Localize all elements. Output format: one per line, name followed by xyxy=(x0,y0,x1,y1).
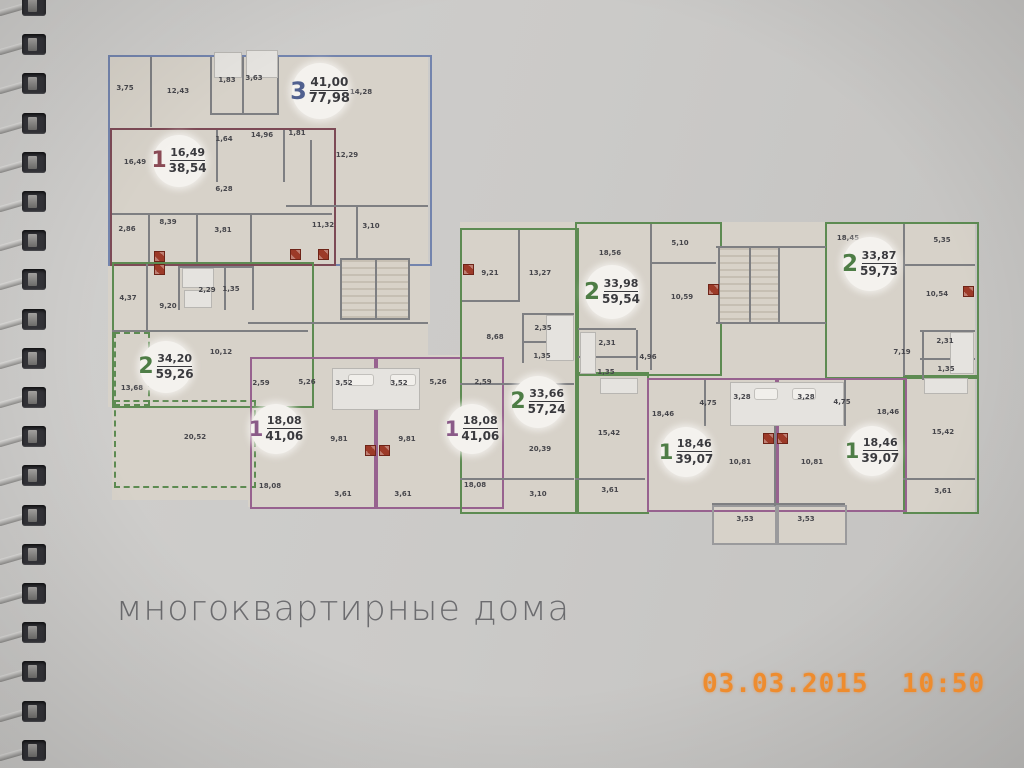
wall-segment xyxy=(522,315,524,363)
room-area-label: 18,46 xyxy=(652,410,674,418)
room-area-label: 3,61 xyxy=(334,490,351,498)
spiral-binding-coil xyxy=(0,188,48,218)
room-area-label: 5,26 xyxy=(429,378,446,386)
living-area-value: 33,66 xyxy=(529,387,564,402)
wall-segment xyxy=(650,224,652,370)
spiral-binding-coil xyxy=(0,266,48,296)
total-area-value: 39,07 xyxy=(861,451,899,465)
spiral-binding-coil xyxy=(0,227,48,257)
apartment-areas: 18,4639,07 xyxy=(861,436,899,465)
wall-segment xyxy=(212,113,279,115)
bathroom-fixture xyxy=(730,382,844,426)
wall-segment xyxy=(252,268,254,310)
wall-segment xyxy=(712,503,845,505)
coil-shine xyxy=(28,665,37,678)
room-area-label: 10,59 xyxy=(671,293,693,301)
spiral-binding-coil xyxy=(0,462,48,492)
living-area-value: 18,46 xyxy=(677,437,712,452)
spiral-binding-coil xyxy=(0,110,48,140)
wall-segment xyxy=(210,57,212,115)
room-area-label: 2,86 xyxy=(118,225,135,233)
apartment-badge: 118,4639,07 xyxy=(847,426,897,476)
room-area-label: 18,56 xyxy=(599,249,621,257)
apartment-rooms-count: 2 xyxy=(584,281,600,304)
room-area-label: 14,96 xyxy=(251,131,273,139)
spiral-binding-coil xyxy=(0,541,48,571)
bathroom-fixture xyxy=(580,332,596,374)
spiral-binding-coil xyxy=(0,502,48,532)
room-area-label: 15,42 xyxy=(932,428,954,436)
room-area-label: 4,37 xyxy=(119,294,136,302)
apartment-rooms-count: 2 xyxy=(510,391,525,413)
wall-segment xyxy=(774,424,776,506)
room-area-label: 9,81 xyxy=(398,435,415,443)
apartment-areas: 33,9859,54 xyxy=(602,277,640,306)
wall-segment xyxy=(460,478,574,480)
spiral-binding-coil xyxy=(0,737,48,767)
stove-icon xyxy=(763,433,774,444)
room-area-label: 1,35 xyxy=(937,365,954,373)
room-area-label: 18,08 xyxy=(464,481,486,489)
room-area-label: 1,35 xyxy=(597,368,614,376)
coil-shine xyxy=(28,195,37,208)
spiral-binding xyxy=(0,0,62,768)
apartment-badge: 234,2059,26 xyxy=(140,341,192,393)
total-area-value: 41,06 xyxy=(265,429,303,443)
total-area-value: 39,07 xyxy=(675,452,713,466)
room-area-label: 18,08 xyxy=(259,482,281,490)
apartment-rooms-count: 1 xyxy=(659,442,674,463)
wall-segment xyxy=(636,330,638,370)
spiral-binding-coil xyxy=(0,149,48,179)
stove-icon xyxy=(963,286,974,297)
room-area-label: 3,28 xyxy=(733,393,750,401)
room-area-label: 1,64 xyxy=(215,135,232,143)
living-area-value: 18,46 xyxy=(863,436,898,451)
room-area-label: 12,29 xyxy=(336,151,358,159)
room-area-label: 2,31 xyxy=(936,337,953,345)
wall-segment xyxy=(242,57,244,115)
room-area-label: 1,35 xyxy=(533,352,550,360)
room-area-label: 10,12 xyxy=(210,348,232,356)
stove-icon xyxy=(290,249,301,260)
coil-shine xyxy=(28,391,37,404)
bathroom-fixture xyxy=(214,52,242,78)
apartment-areas: 41,0077,98 xyxy=(309,75,350,106)
room-area-label: 12,43 xyxy=(167,87,189,95)
room-area-label: 9,20 xyxy=(159,302,176,310)
wall-segment xyxy=(462,300,520,302)
room-area-label: 14,28 xyxy=(350,88,372,96)
coil-shine xyxy=(28,156,37,169)
room-area-label: 2,59 xyxy=(252,379,269,387)
apartment-areas: 34,2059,26 xyxy=(156,352,194,381)
apartment-badge: 116,4938,54 xyxy=(153,135,205,187)
wall-segment xyxy=(652,262,716,264)
spiral-binding-coil xyxy=(0,384,48,414)
total-area-value: 57,24 xyxy=(528,402,566,416)
wall-segment xyxy=(575,478,645,480)
total-area-value: 77,98 xyxy=(309,91,350,107)
room-area-label: 15,42 xyxy=(598,429,620,437)
apartment-areas: 18,0841,06 xyxy=(461,414,499,443)
room-area-label: 2,59 xyxy=(474,378,491,386)
page-title: многоквартирные дома xyxy=(116,589,570,629)
room-area-label: 4,75 xyxy=(833,398,850,406)
room-area-label: 13,27 xyxy=(529,269,551,277)
total-area-value: 59,54 xyxy=(602,292,640,306)
room-area-label: 10,81 xyxy=(801,458,823,466)
apartment-areas: 33,6657,24 xyxy=(528,387,566,416)
room-area-label: 5,10 xyxy=(671,239,688,247)
room-area-label: 3,53 xyxy=(736,515,753,523)
room-area-label: 1,81 xyxy=(288,129,305,137)
apartment-areas: 18,4639,07 xyxy=(675,437,713,466)
wall-segment xyxy=(178,268,180,310)
stove-icon xyxy=(777,433,788,444)
room-area-label: 4,75 xyxy=(699,399,716,407)
apartment-badge: 118,0841,06 xyxy=(251,404,301,454)
room-area-label: 3,81 xyxy=(214,226,231,234)
room-area-label: 9,81 xyxy=(330,435,347,443)
stove-icon xyxy=(318,249,329,260)
bathroom-fixture xyxy=(600,378,638,394)
coil-shine xyxy=(28,469,37,482)
living-area-value: 18,08 xyxy=(267,414,302,429)
total-area-value: 59,73 xyxy=(860,264,898,278)
wall-segment xyxy=(905,264,975,266)
wall-segment xyxy=(146,264,148,330)
coil-shine xyxy=(28,117,37,130)
room-area-label: 20,39 xyxy=(529,445,551,453)
stove-icon xyxy=(708,284,719,295)
stove-icon xyxy=(365,445,376,456)
total-area-value: 59,26 xyxy=(156,367,194,381)
room-area-label: 2,35 xyxy=(534,324,551,332)
apartment-badge: 233,8759,73 xyxy=(843,237,897,291)
room-area-label: 3,63 xyxy=(245,74,262,82)
room-area-label: 3,75 xyxy=(116,84,133,92)
room-area-label: 8,68 xyxy=(486,333,503,341)
apartment-rooms-count: 2 xyxy=(138,356,153,378)
spiral-binding-coil xyxy=(0,70,48,100)
room-area-label: 3,10 xyxy=(529,490,546,498)
room-area-label: 3,28 xyxy=(797,393,814,401)
coil-shine xyxy=(28,313,37,326)
wall-segment xyxy=(196,215,198,262)
wall-segment xyxy=(283,130,285,182)
coil-shine xyxy=(28,273,37,286)
spiral-binding-coil xyxy=(0,619,48,649)
wall-segment xyxy=(248,322,428,324)
floor-plan: 3,7512,431,833,6314,2814,961,8112,291,64… xyxy=(0,0,1024,768)
coil-shine xyxy=(28,705,37,718)
coil-shine xyxy=(28,587,37,600)
coil-shine xyxy=(28,744,37,757)
apartment-areas: 33,8759,73 xyxy=(860,249,898,278)
apartment-outline xyxy=(110,128,336,266)
camera-timestamp: 03.03.2015 10:50 xyxy=(702,669,985,699)
apartment-areas: 18,0841,06 xyxy=(265,414,303,443)
coil-shine xyxy=(28,234,37,247)
room-area-label: 7,19 xyxy=(893,348,910,356)
apartment-badge: 118,4639,07 xyxy=(661,427,711,477)
room-area-label: 3,52 xyxy=(390,379,407,387)
room-area-label: 13,68 xyxy=(121,384,143,392)
stove-icon xyxy=(154,251,165,262)
wall-segment xyxy=(518,230,520,302)
coil-shine xyxy=(28,77,37,90)
room-area-label: 1,83 xyxy=(218,76,235,84)
apartment-rooms-count: 1 xyxy=(845,441,860,462)
wall-segment xyxy=(578,328,636,330)
wall-segment xyxy=(148,215,150,262)
wall-segment xyxy=(356,207,358,262)
apartment-rooms-count: 1 xyxy=(249,419,264,440)
room-area-label: 3,53 xyxy=(797,515,814,523)
total-area-value: 38,54 xyxy=(169,161,207,175)
coil-shine xyxy=(28,430,37,443)
apartment-rooms-count: 1 xyxy=(151,150,166,172)
living-area-value: 16,49 xyxy=(170,146,205,161)
spiral-binding-coil xyxy=(0,0,48,22)
wall-segment xyxy=(922,332,924,380)
room-area-label: 3,52 xyxy=(335,379,352,387)
stove-icon xyxy=(463,264,474,275)
room-area-label: 11,32 xyxy=(312,221,334,229)
wall-segment xyxy=(150,57,152,127)
coil-shine xyxy=(28,509,37,522)
room-area-label: 10,81 xyxy=(729,458,751,466)
coil-shine xyxy=(28,548,37,561)
spiral-binding-coil xyxy=(0,423,48,453)
apartment-outline xyxy=(114,400,256,488)
spiral-binding-coil xyxy=(0,658,48,688)
room-area-label: 9,21 xyxy=(481,269,498,277)
stove-icon xyxy=(379,445,390,456)
coil-shine xyxy=(28,626,37,639)
room-area-label: 2,31 xyxy=(598,339,615,347)
room-area-label: 2,29 xyxy=(198,286,215,294)
spiral-binding-coil xyxy=(0,306,48,336)
apartment-outline xyxy=(775,505,847,545)
living-area-value: 41,00 xyxy=(310,75,348,91)
apartment-outline xyxy=(712,505,779,545)
room-area-label: 8,39 xyxy=(159,218,176,226)
wall-segment xyxy=(112,213,332,215)
bathroom-fixture xyxy=(924,378,968,394)
room-area-label: 20,52 xyxy=(184,433,206,441)
apartment-badge: 233,9859,54 xyxy=(585,265,639,319)
staircase-icon xyxy=(340,258,410,320)
room-area-label: 3,10 xyxy=(362,222,379,230)
living-area-value: 18,08 xyxy=(463,414,498,429)
apartment-rooms-count: 2 xyxy=(842,253,858,276)
room-area-label: 4,96 xyxy=(639,353,656,361)
room-area-label: 3,61 xyxy=(934,487,951,495)
living-area-value: 34,20 xyxy=(157,352,192,367)
spiral-binding-coil xyxy=(0,580,48,610)
wall-segment xyxy=(112,330,308,332)
wall-segment xyxy=(310,140,312,207)
apartment-areas: 16,4938,54 xyxy=(169,146,207,175)
apartment-badge: 118,0841,06 xyxy=(447,404,497,454)
apartment-rooms-count: 3 xyxy=(290,79,307,103)
room-area-label: 18,46 xyxy=(877,408,899,416)
coil-shine xyxy=(28,352,37,365)
room-area-label: 6,28 xyxy=(215,185,232,193)
room-area-label: 5,26 xyxy=(298,378,315,386)
coil-shine xyxy=(28,0,37,12)
apartment-badge: 233,6657,24 xyxy=(512,376,564,428)
spiral-binding-coil xyxy=(0,345,48,375)
room-area-label: 16,49 xyxy=(124,158,146,166)
living-area-value: 33,98 xyxy=(604,277,639,292)
room-area-label: 3,61 xyxy=(394,490,411,498)
apartment-badge: 341,0077,98 xyxy=(292,63,348,119)
room-area-label: 10,54 xyxy=(926,290,948,298)
wall-segment xyxy=(250,215,252,262)
bathroom-fixture xyxy=(182,268,214,288)
room-area-label: 1,35 xyxy=(222,285,239,293)
living-area-value: 33,87 xyxy=(862,249,897,264)
spiral-binding-coil xyxy=(0,698,48,728)
sink-fixture xyxy=(754,388,778,400)
apartment-rooms-count: 1 xyxy=(445,419,460,440)
stove-icon xyxy=(154,264,165,275)
total-area-value: 41,06 xyxy=(461,429,499,443)
room-area-label: 3,61 xyxy=(601,486,618,494)
staircase-icon xyxy=(718,246,780,324)
wall-segment xyxy=(903,478,975,480)
room-area-label: 5,35 xyxy=(933,236,950,244)
coil-shine xyxy=(28,38,37,51)
spiral-binding-coil xyxy=(0,31,48,61)
